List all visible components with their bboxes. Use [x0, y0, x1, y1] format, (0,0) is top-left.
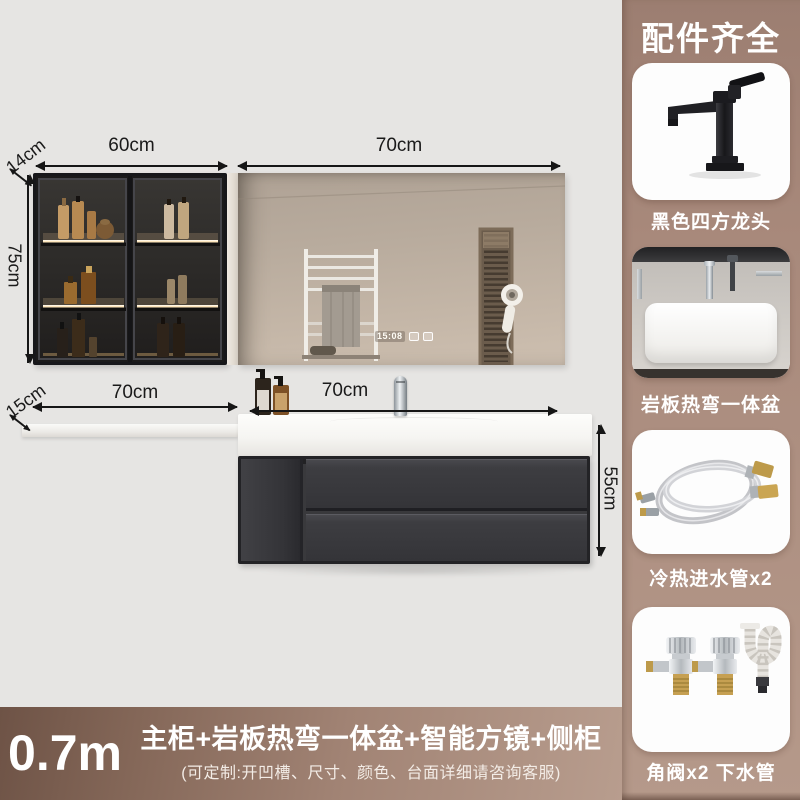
mirror-display: 15:08: [375, 331, 433, 342]
mirror-defog-icon: [409, 332, 419, 341]
accessory-card-valves: [632, 607, 790, 752]
customization-note: (可定制:开凹槽、尺寸、颜色、台面详细请咨询客服): [128, 759, 614, 783]
configuration-title: 主柜+岩板热弯一体盆+智能方镜+侧柜: [128, 722, 614, 756]
bottle-pump: [260, 369, 265, 379]
accessories-sidebar: 配件齐全 黑色四方龙头: [622, 0, 800, 800]
angle-valves-drain-icon: [632, 607, 790, 752]
bathroom-vanity-product-image: 15:08 60cm 70cm 14cm: [0, 0, 800, 800]
towel-bar-icon: [637, 269, 642, 299]
integrated-basin-icon: [645, 303, 777, 363]
sidebar-title: 配件齐全: [622, 12, 800, 60]
main-cabinet: [238, 456, 590, 564]
cabinet-left-door: [241, 459, 303, 561]
dimension-arrow-cabinet-width: [36, 165, 227, 167]
cabinet-side-panel: [227, 173, 238, 365]
accessory-card-hoses: [632, 430, 790, 554]
size-label: 0.7m: [4, 728, 126, 778]
accessory-label-valves: 角阀x2 下水管: [622, 758, 800, 785]
accessory-card-faucet: [632, 63, 790, 200]
accessory-label-faucet: 黑色四方龙头: [622, 207, 800, 234]
mirror-clock: 15:08: [375, 331, 405, 342]
dimension-vanity-width: 70cm: [250, 380, 440, 402]
stone-countertop: [238, 414, 592, 456]
cabinet-shadow: [252, 566, 582, 576]
drawer-bottom: [306, 514, 587, 561]
accessory-card-basin: [632, 247, 790, 378]
drawer-top: [306, 459, 587, 511]
accessory-label-basin: 岩板热弯一体盆: [622, 390, 800, 417]
dimension-arrow-mirror-width: [238, 165, 560, 167]
dimension-cabinet-width: 60cm: [36, 135, 227, 157]
side-cabinet: [33, 173, 227, 365]
dimension-arrow-vanity-width: [250, 410, 557, 412]
dimension-shelf-width: 70cm: [33, 382, 237, 404]
cabinet-door-divider: [128, 176, 132, 362]
braided-hoses-icon: [632, 430, 790, 554]
accessory-label-hoses: 冷热进水管x2: [622, 564, 800, 591]
mirror-light-icon: [423, 332, 433, 341]
summary-text: 主柜+岩板热弯一体盆+智能方镜+侧柜 (可定制:开凹槽、尺寸、颜色、台面详细请咨…: [128, 722, 614, 783]
shelf-rail-icon: [756, 271, 782, 276]
sprayer-icon: [730, 261, 735, 291]
dimension-mirror-width: 70cm: [238, 135, 560, 157]
basin-photo-top-band: [632, 247, 790, 262]
dimension-vanity-height: 55cm: [600, 466, 621, 512]
chrome-faucet-icon: [706, 265, 713, 299]
dimension-arrow-shelf-width: [33, 406, 237, 408]
side-shelf: [22, 424, 238, 437]
dimension-cabinet-height: 75cm: [4, 243, 25, 289]
basin-outline: [330, 417, 498, 426]
dimension-arrow-cabinet-height: [27, 175, 29, 363]
black-square-faucet-icon: [632, 63, 790, 200]
smart-mirror: 15:08: [238, 173, 565, 365]
basin-photo-bottom-band: [632, 369, 790, 378]
